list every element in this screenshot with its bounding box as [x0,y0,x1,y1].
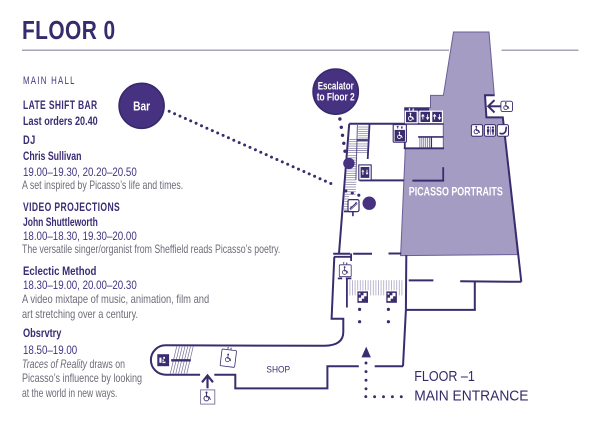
svg-text:Bar: Bar [133,98,150,113]
svg-text:PICASSO PORTRAITS: PICASSO PORTRAITS [409,184,503,198]
svg-text:FLOOR –1: FLOOR –1 [414,369,475,385]
svg-text:SHOP: SHOP [266,364,290,375]
svg-text:MAIN ENTRANCE: MAIN ENTRANCE [414,389,528,405]
svg-text:to Floor 2: to Floor 2 [317,91,355,103]
